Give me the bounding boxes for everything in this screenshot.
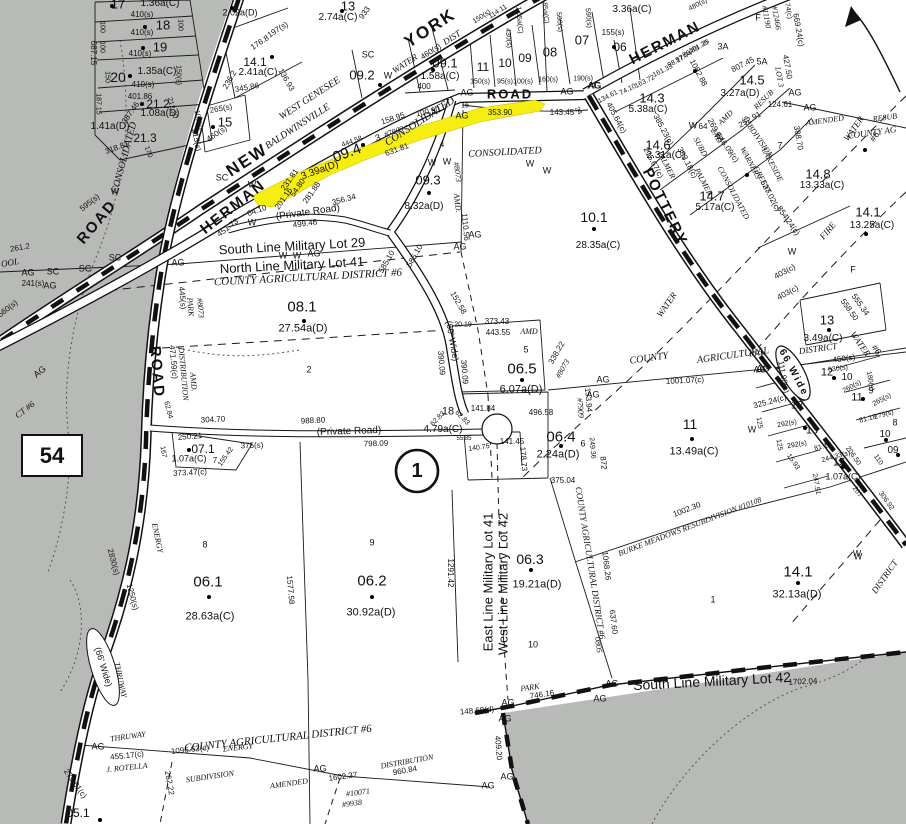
parcel-centroid-dot	[520, 378, 524, 382]
map-label: F	[850, 266, 856, 275]
map-label: 30.92a(D)	[347, 608, 396, 619]
parcel-centroid-dot	[140, 102, 144, 106]
map-label: 5	[523, 346, 528, 355]
parcel-centroid-dot	[427, 191, 431, 195]
map-label: 06.2	[357, 574, 386, 589]
parcel-centroid-dot	[832, 376, 836, 380]
map-label: AG	[501, 699, 514, 708]
map-label: AG	[313, 765, 326, 774]
map-label: 8	[202, 541, 207, 550]
map-label: 8.32a(D)	[405, 202, 444, 212]
map-label: 3A	[717, 43, 728, 52]
map-label: W	[853, 550, 862, 559]
map-label: 2.31a(C)	[647, 151, 686, 161]
map-label: 410(s)	[131, 29, 154, 37]
map-label: 9	[868, 387, 873, 396]
map-label: AG	[498, 715, 511, 724]
map-label: 20.19	[454, 322, 472, 329]
map-label: 14.8	[805, 168, 830, 181]
map-label: 9	[369, 539, 374, 548]
map-label: 11	[477, 61, 489, 73]
map-label: 13.25a(C)	[850, 221, 894, 231]
parcel-centroid-dot	[141, 46, 145, 50]
map-label: 06.5	[507, 362, 536, 377]
map-label: 19	[153, 41, 167, 54]
map-label: 400	[417, 83, 430, 91]
map-label: W	[689, 122, 698, 131]
parcel-centroid-dot	[592, 227, 596, 231]
parcel-centroid-dot	[378, 83, 382, 87]
map-label: 1.58a(C)	[421, 72, 460, 82]
parcel-centroid-dot	[211, 125, 215, 129]
map-label: 7	[777, 142, 782, 151]
map-label: 0805	[593, 636, 603, 653]
parcel-centroid-dot	[559, 444, 563, 448]
map-label: 11	[683, 417, 698, 431]
map-label: AMD.	[452, 193, 462, 213]
map-label: AG	[588, 82, 601, 91]
map-label: 10.1	[580, 210, 607, 224]
map-label: 64	[699, 123, 708, 131]
map-label: ROAD	[147, 345, 166, 398]
map-label: 1	[411, 461, 422, 481]
map-label: 05.1	[66, 807, 89, 819]
map-label: 2.74a(C)	[319, 13, 358, 23]
map-label: 14.1	[783, 565, 812, 580]
map-label: AMD	[520, 328, 537, 336]
map-label: SC	[216, 174, 229, 183]
map-label: 141.84	[471, 405, 495, 413]
map-label: West Line Military Lot 42	[497, 513, 510, 655]
map-label: 687.15	[89, 41, 97, 65]
map-label: 20	[110, 70, 126, 84]
map-label: W	[111, 188, 120, 197]
parcel-centroid-dot	[98, 818, 102, 822]
map-label: AG	[586, 391, 599, 400]
parcel-centroid-dot	[340, 9, 344, 13]
map-label: 988.80	[301, 416, 326, 425]
parcel-centroid-dot	[110, 4, 114, 8]
map-label: 13	[820, 314, 834, 327]
map-label: 14.7	[699, 190, 724, 203]
map-label: 32.13a(D)	[773, 590, 822, 601]
map-label: 14.5	[739, 74, 764, 87]
map-label: AG	[756, 365, 769, 374]
map-label: 5.38a(C)	[629, 105, 668, 115]
parcel-centroid-dot	[612, 45, 616, 49]
map-label: 07	[575, 34, 589, 47]
parcel-centroid-dot	[370, 595, 374, 599]
map-label: #8073	[195, 298, 205, 319]
map-label: 2.41a(C)	[239, 68, 278, 78]
map-label: 1702.04	[788, 677, 817, 687]
map-label: 28.35a(C)	[576, 241, 620, 251]
map-label: 872	[598, 456, 607, 470]
map-label: 124.61	[768, 101, 792, 109]
map-label: 410(s)	[132, 81, 155, 89]
map-label: W	[543, 167, 552, 176]
map-label: AG	[593, 695, 606, 704]
map-label: 10	[528, 641, 538, 650]
map-label: 304.70	[201, 415, 226, 424]
map-label: 187.15	[95, 93, 102, 114]
map-label: 496.58	[529, 409, 553, 417]
parcel-centroid-dot	[431, 68, 435, 72]
map-label: AMD.	[188, 372, 198, 392]
map-label: 95(s)	[497, 79, 513, 86]
map-label: 2	[306, 366, 311, 375]
map-label: 4.79a(C)	[424, 425, 463, 435]
map-label: AG	[468, 231, 481, 240]
map-label: W	[748, 426, 757, 435]
map-label: F	[755, 14, 761, 23]
map-label: East Line Military Lot 41	[482, 513, 495, 652]
map-label: 09.3	[415, 174, 440, 187]
map-label: AG	[560, 88, 573, 97]
map-label: SC	[79, 265, 92, 274]
map-label: W	[428, 159, 437, 168]
map-label: 410(s)	[129, 50, 152, 58]
map-label: W	[248, 181, 257, 190]
map-label: 06.3	[516, 552, 543, 566]
map-label: 13	[806, 426, 818, 437]
parcel-centroid-dot	[302, 319, 306, 323]
map-label: 27.54a(D)	[279, 324, 328, 335]
map-label: 5A	[756, 58, 767, 67]
map-label: 3.27a(D)	[721, 89, 760, 99]
map-label: 6.07a(D)	[500, 385, 543, 396]
map-label: 14.3	[639, 92, 664, 105]
map-label: 143.45	[550, 109, 574, 117]
map-label: 1	[710, 596, 715, 605]
parcel-centroid-dot	[861, 397, 865, 401]
map-label: 150	[104, 71, 111, 83]
map-label: 798.09	[364, 440, 389, 449]
map-label: AG	[605, 680, 618, 689]
map-label: AG	[21, 269, 34, 278]
parcel-centroid-dot	[863, 148, 867, 152]
map-label: 373.43	[485, 318, 509, 326]
map-label: 2.02a(D)	[222, 9, 257, 18]
parcel-centroid-dot	[827, 328, 831, 332]
map-label: W	[788, 248, 797, 257]
tax-parcel-map: 171.36a(C)410(s)18410(s)19410(s)201.35a(…	[0, 0, 906, 824]
map-label: 08.1	[287, 300, 316, 315]
map-label: 08	[543, 46, 557, 59]
parcel-centroid-dot	[207, 595, 211, 599]
parcel-centroid-dot	[693, 69, 697, 73]
map-label: 06.1	[193, 575, 222, 590]
map-label: AG	[453, 243, 466, 252]
map-label: 13.49a(C)	[670, 447, 719, 458]
map-label: 160(s)	[538, 77, 558, 84]
parcel-centroid-dot	[803, 426, 807, 430]
map-label: 09	[518, 52, 531, 64]
map-label: 1.41a(D)	[91, 122, 130, 132]
map-label: AG	[500, 773, 513, 782]
map-label: 4	[440, 141, 444, 149]
map-label: W	[248, 219, 257, 228]
map-label: 21.3	[133, 132, 156, 144]
map-label: 09.1	[432, 57, 457, 70]
map-label: 375(s)	[241, 442, 264, 451]
map-label: 1.07a(C)	[171, 455, 206, 464]
parcel-centroid-dot	[841, 465, 845, 469]
map-label: 155(s)	[602, 29, 625, 37]
map-label: 637.60	[608, 609, 619, 634]
parcel-centroid-dot	[796, 581, 800, 585]
map-label: 6	[580, 440, 585, 449]
map-label: 178.73	[518, 446, 528, 471]
map-label: AG	[43, 282, 56, 291]
map-label: W	[384, 72, 393, 81]
parcel-centroid-dot	[230, 6, 234, 10]
parcel-centroid-dot	[187, 448, 191, 452]
map-label: AG	[481, 782, 494, 791]
map-label: AG	[803, 104, 816, 113]
map-label: 409.20	[493, 735, 503, 760]
map-label: 19.21a(D)	[513, 580, 562, 591]
map-label: 1.07a(C)	[825, 473, 860, 482]
map-label: 5.17a(C)	[696, 203, 735, 213]
map-label: 10	[841, 373, 852, 383]
map-label: 150(s)	[470, 79, 490, 86]
map-label: AG	[460, 89, 473, 98]
parcel-centroid-dot	[690, 437, 694, 441]
map-label: 8	[892, 419, 897, 428]
map-label: 353.90	[488, 109, 512, 117]
map-label: 375.04	[551, 477, 575, 485]
map-label: 12	[791, 401, 803, 412]
parcel-centroid-dot	[128, 74, 132, 78]
map-label: W	[443, 158, 452, 167]
map-label: 443.55	[486, 329, 510, 337]
map-label: 100	[99, 21, 106, 33]
parcel-centroid-dot	[361, 143, 365, 147]
map-label: SC	[47, 268, 60, 277]
map-label: #8073	[452, 162, 462, 183]
map-label: 100(s)	[513, 79, 533, 86]
map-label: 150(s)	[175, 65, 182, 85]
map-label: 1291.42	[446, 559, 454, 588]
map-label: PARK	[185, 297, 195, 317]
map-label: W	[526, 160, 535, 169]
map-label: 16	[461, 103, 469, 110]
map-label: ROAD	[487, 88, 533, 101]
map-label: 241(s)	[22, 280, 45, 288]
map-label: 141.45	[500, 438, 524, 446]
map-label: AG	[596, 376, 609, 385]
map-label: 18	[156, 19, 170, 32]
parcel-centroid-dot	[896, 453, 900, 457]
map-label: 410(s)	[131, 11, 154, 19]
map-label: 13.33a(C)	[800, 181, 844, 191]
map-label: SC	[109, 254, 122, 263]
map-label: 10	[498, 57, 511, 69]
parcel-centroid-dot	[270, 55, 274, 59]
map-label: 28.63a(C)	[186, 612, 235, 623]
map-label: 54	[40, 445, 64, 467]
map-label: 390.09	[459, 359, 469, 384]
map-label: 100	[99, 41, 106, 53]
parcel-centroid-dot	[884, 438, 888, 442]
map-label: 14.1	[855, 206, 880, 219]
map-label: 100	[177, 19, 184, 31]
map-label: AG	[455, 112, 468, 121]
parcel-centroid-dot	[745, 173, 749, 177]
map-label: AG	[91, 743, 104, 752]
map-label: #7909	[575, 398, 585, 419]
map-label: 2.24a(D)	[537, 450, 580, 461]
map-label: 1577.58	[285, 575, 295, 605]
parcel-centroid-dot	[143, 25, 147, 29]
map-label: 09.2	[349, 69, 374, 82]
parcel-centroid-dot	[529, 568, 533, 572]
parcel-centroid-dot	[864, 232, 868, 236]
map-label: 06.4	[546, 430, 575, 445]
map-label: AG	[171, 259, 184, 268]
map-label: AG	[788, 89, 801, 98]
map-label: 390.09	[436, 350, 446, 375]
map-label: 55.85	[456, 436, 471, 442]
map-label: 1.36a(C)	[141, 0, 180, 9]
map-label: 3.36a(C)	[613, 5, 652, 15]
map-label: SC	[362, 51, 375, 60]
map-label: 1.35a(C)	[138, 67, 177, 77]
